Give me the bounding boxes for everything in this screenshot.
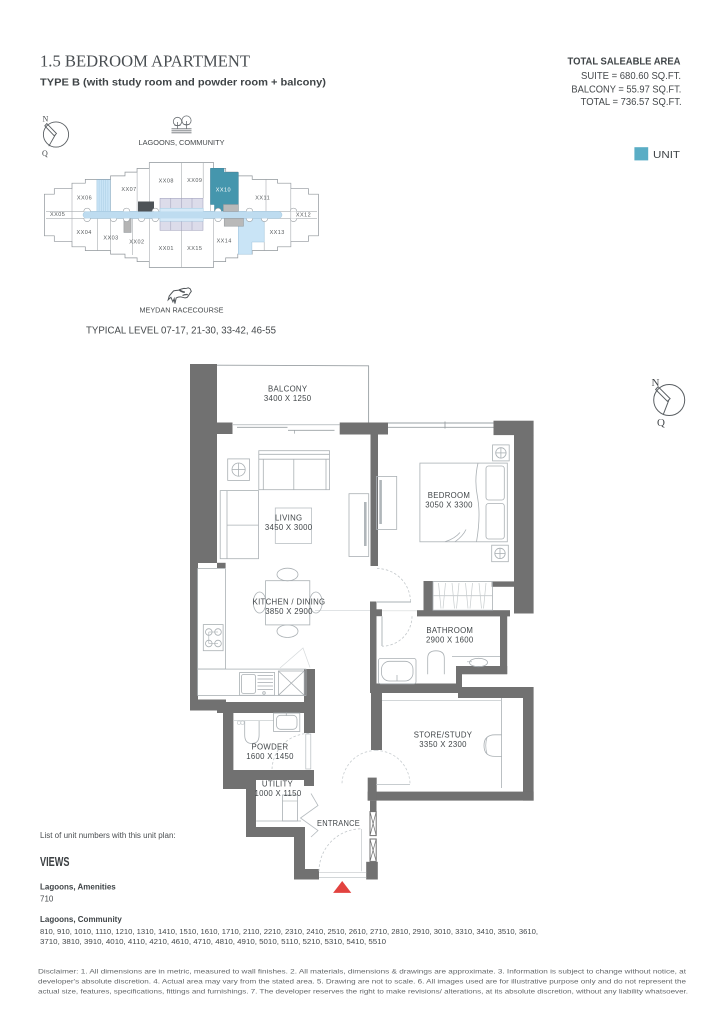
svg-text:2900 X 1600: 2900 X 1600 [426,636,474,645]
svg-text:UNIT: UNIT [653,149,681,161]
svg-text:810, 910, 1010, 1110, 1210, 13: 810, 910, 1010, 1110, 1210, 1310, 1410, … [40,927,538,936]
svg-text:BEDROOM: BEDROOM [428,491,470,500]
svg-text:SUITE = 680.60 SQ.FT.: SUITE = 680.60 SQ.FT. [581,71,681,82]
svg-text:TYPICAL LEVEL 07-17, 21-30, 33: TYPICAL LEVEL 07-17, 21-30, 33-42, 46-55 [86,326,276,337]
svg-text:KITCHEN / DINING: KITCHEN / DINING [253,598,326,607]
svg-text:XX08: XX08 [159,178,174,184]
svg-text:XX04: XX04 [76,230,91,236]
svg-text:TOTAL = 736.57 SQ.FT.: TOTAL = 736.57 SQ.FT. [581,97,682,108]
svg-text:List of unit numbers with this: List of unit numbers with this unit plan… [40,831,176,840]
svg-text:BATHROOM: BATHROOM [426,626,473,635]
svg-text:N: N [652,377,660,389]
svg-text:XX03: XX03 [103,236,118,242]
svg-text:BALCONY: BALCONY [268,385,308,394]
svg-text:3400 X 1250: 3400 X 1250 [264,394,312,403]
svg-text:XX09: XX09 [187,178,202,184]
svg-text:XX11: XX11 [255,195,270,201]
svg-text:3050 X 3300: 3050 X 3300 [425,501,473,510]
svg-text:Q: Q [657,417,665,429]
svg-text:POWDER: POWDER [252,743,289,752]
svg-text:actual size, features, specifi: actual size, features, specifications, f… [38,989,688,996]
svg-text:1000 X 1150: 1000 X 1150 [255,789,302,798]
svg-text:XX06: XX06 [77,196,92,202]
svg-text:Disclaimer: 1. All dimensions: Disclaimer: 1. All dimensions are in met… [38,969,686,976]
svg-text:TYPE B (with study room and po: TYPE B (with study room and powder room … [40,78,326,89]
svg-text:XX13: XX13 [270,230,285,236]
svg-text:3710, 3810, 3910, 4010, 4110,: 3710, 3810, 3910, 4010, 4110, 4210, 4610… [40,937,386,946]
svg-text:XX14: XX14 [217,238,232,244]
svg-text:XX01: XX01 [159,246,174,252]
svg-text:XX10: XX10 [216,187,231,193]
svg-text:3350 X 2300: 3350 X 2300 [419,740,467,749]
svg-text:N: N [43,115,49,124]
svg-text:MEYDAN RACECOURSE: MEYDAN RACECOURSE [140,306,224,315]
svg-text:Lagoons, Amenities: Lagoons, Amenities [40,883,116,892]
svg-text:STORE/STUDY: STORE/STUDY [414,731,473,740]
svg-text:XX02: XX02 [129,240,144,246]
svg-text:BALCONY = 55.97 SQ.FT.: BALCONY = 55.97 SQ.FT. [571,84,681,95]
svg-text:3850 X 2900: 3850 X 2900 [265,607,313,616]
svg-text:XX12: XX12 [296,213,311,219]
svg-text:LAGOONS, COMMUNITY: LAGOONS, COMMUNITY [139,138,225,147]
svg-text:developer's absolute discretio: developer's absolute discretion. 4. Actu… [38,979,687,986]
svg-text:ENTRANCE: ENTRANCE [317,819,360,828]
svg-text:UTILITY: UTILITY [262,780,294,789]
svg-text:XX07: XX07 [121,187,136,193]
svg-text:Q: Q [42,149,48,158]
svg-text:710: 710 [40,895,54,904]
svg-text:Lagoons, Community: Lagoons, Community [40,915,122,924]
svg-text:TOTAL SALEABLE AREA: TOTAL SALEABLE AREA [568,57,681,68]
svg-text:XX15: XX15 [187,246,202,252]
svg-text:LIVING: LIVING [275,514,302,523]
svg-text:VIEWS: VIEWS [40,855,70,869]
svg-text:1.5 BEDROOM APARTMENT: 1.5 BEDROOM APARTMENT [40,52,251,71]
svg-text:1600 X 1450: 1600 X 1450 [246,752,294,761]
svg-text:XX05: XX05 [50,212,65,218]
svg-text:3450 X 3000: 3450 X 3000 [265,523,313,532]
